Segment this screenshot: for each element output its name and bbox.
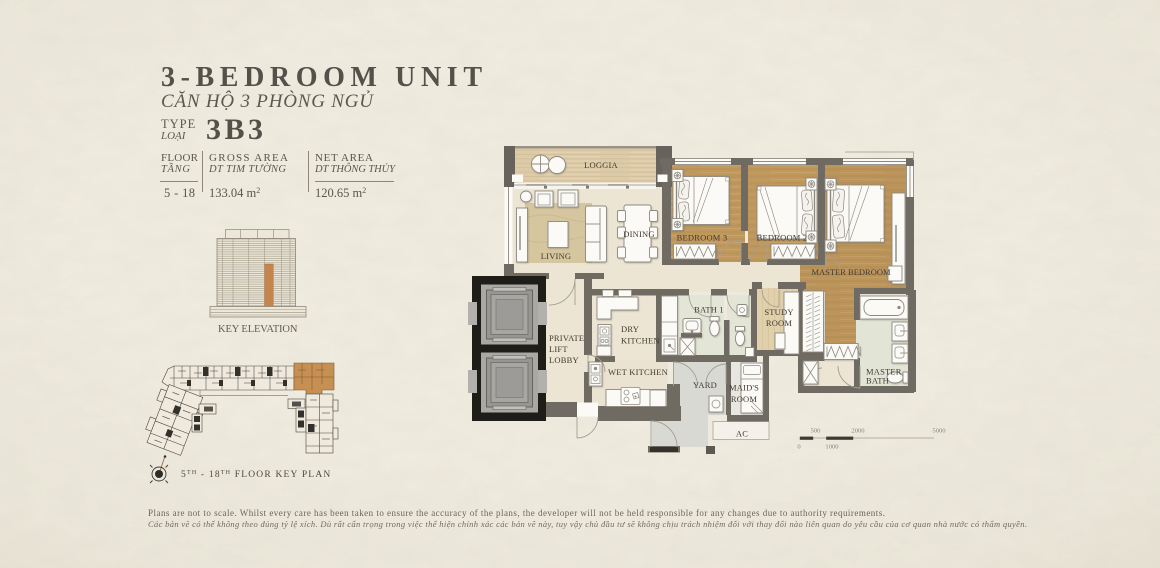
svg-text:Plans are not to scale. Whilst: Plans are not to scale. Whilst every car…: [148, 508, 885, 518]
svg-text:YARD: YARD: [693, 380, 717, 390]
svg-text:DINING: DINING: [623, 229, 654, 239]
svg-text:DT THÔNG THỦY: DT THÔNG THỦY: [314, 163, 396, 175]
svg-text:LOGGIA: LOGGIA: [584, 160, 618, 170]
svg-text:LIVING: LIVING: [541, 251, 571, 261]
svg-text:LIFT: LIFT: [549, 344, 568, 354]
svg-text:NET AREA: NET AREA: [315, 152, 373, 164]
svg-text:BATH 1: BATH 1: [694, 305, 724, 315]
svg-text:5TH - 18TH FLOOR KEY PLAN: 5TH - 18TH FLOOR KEY PLAN: [181, 470, 331, 480]
svg-text:WET KITCHEN: WET KITCHEN: [608, 367, 668, 377]
svg-text:MAID'S: MAID'S: [729, 383, 759, 393]
svg-text:500: 500: [811, 428, 822, 435]
svg-text:TẦNG: TẦNG: [161, 163, 190, 175]
svg-text:PRIVATE: PRIVATE: [549, 333, 584, 343]
svg-text:BATH: BATH: [866, 376, 889, 386]
svg-text:GROSS AREA: GROSS AREA: [209, 152, 288, 164]
svg-text:KITCHEN: KITCHEN: [621, 336, 660, 346]
svg-text:5000: 5000: [932, 428, 946, 435]
svg-text:DT TIM TƯỜNG: DT TIM TƯỜNG: [208, 163, 286, 175]
svg-text:CĂN HỘ 3 PHÒNG NGỦ: CĂN HỘ 3 PHÒNG NGỦ: [161, 90, 374, 112]
svg-text:DRY: DRY: [621, 324, 639, 334]
svg-text:133.04 m2: 133.04 m2: [209, 186, 260, 200]
svg-text:AC: AC: [736, 429, 748, 439]
svg-text:120.65 m2: 120.65 m2: [315, 186, 366, 200]
svg-text:BEDROOM 3: BEDROOM 3: [677, 233, 728, 243]
svg-text:2000: 2000: [851, 428, 865, 435]
svg-text:Các bản vẽ có thể không theo đ: Các bản vẽ có thể không theo đúng tỷ lệ …: [148, 519, 1027, 529]
svg-text:1000: 1000: [825, 444, 839, 451]
svg-text:ROOM: ROOM: [766, 318, 793, 328]
svg-text:5 - 18: 5 - 18: [164, 186, 195, 200]
svg-text:KEY ELEVATION: KEY ELEVATION: [218, 324, 299, 335]
svg-text:LOBBY: LOBBY: [549, 355, 579, 365]
svg-text:TYPE: TYPE: [161, 117, 196, 131]
svg-text:LOẠI: LOẠI: [160, 130, 187, 142]
svg-text:MASTER BEDROOM: MASTER BEDROOM: [811, 267, 891, 277]
svg-text:STUDY: STUDY: [764, 307, 793, 317]
svg-text:BEDROOM 2: BEDROOM 2: [757, 233, 808, 243]
svg-text:FLOOR: FLOOR: [161, 152, 199, 164]
svg-text:ROOM: ROOM: [731, 394, 758, 404]
svg-text:3B3: 3B3: [206, 113, 263, 146]
